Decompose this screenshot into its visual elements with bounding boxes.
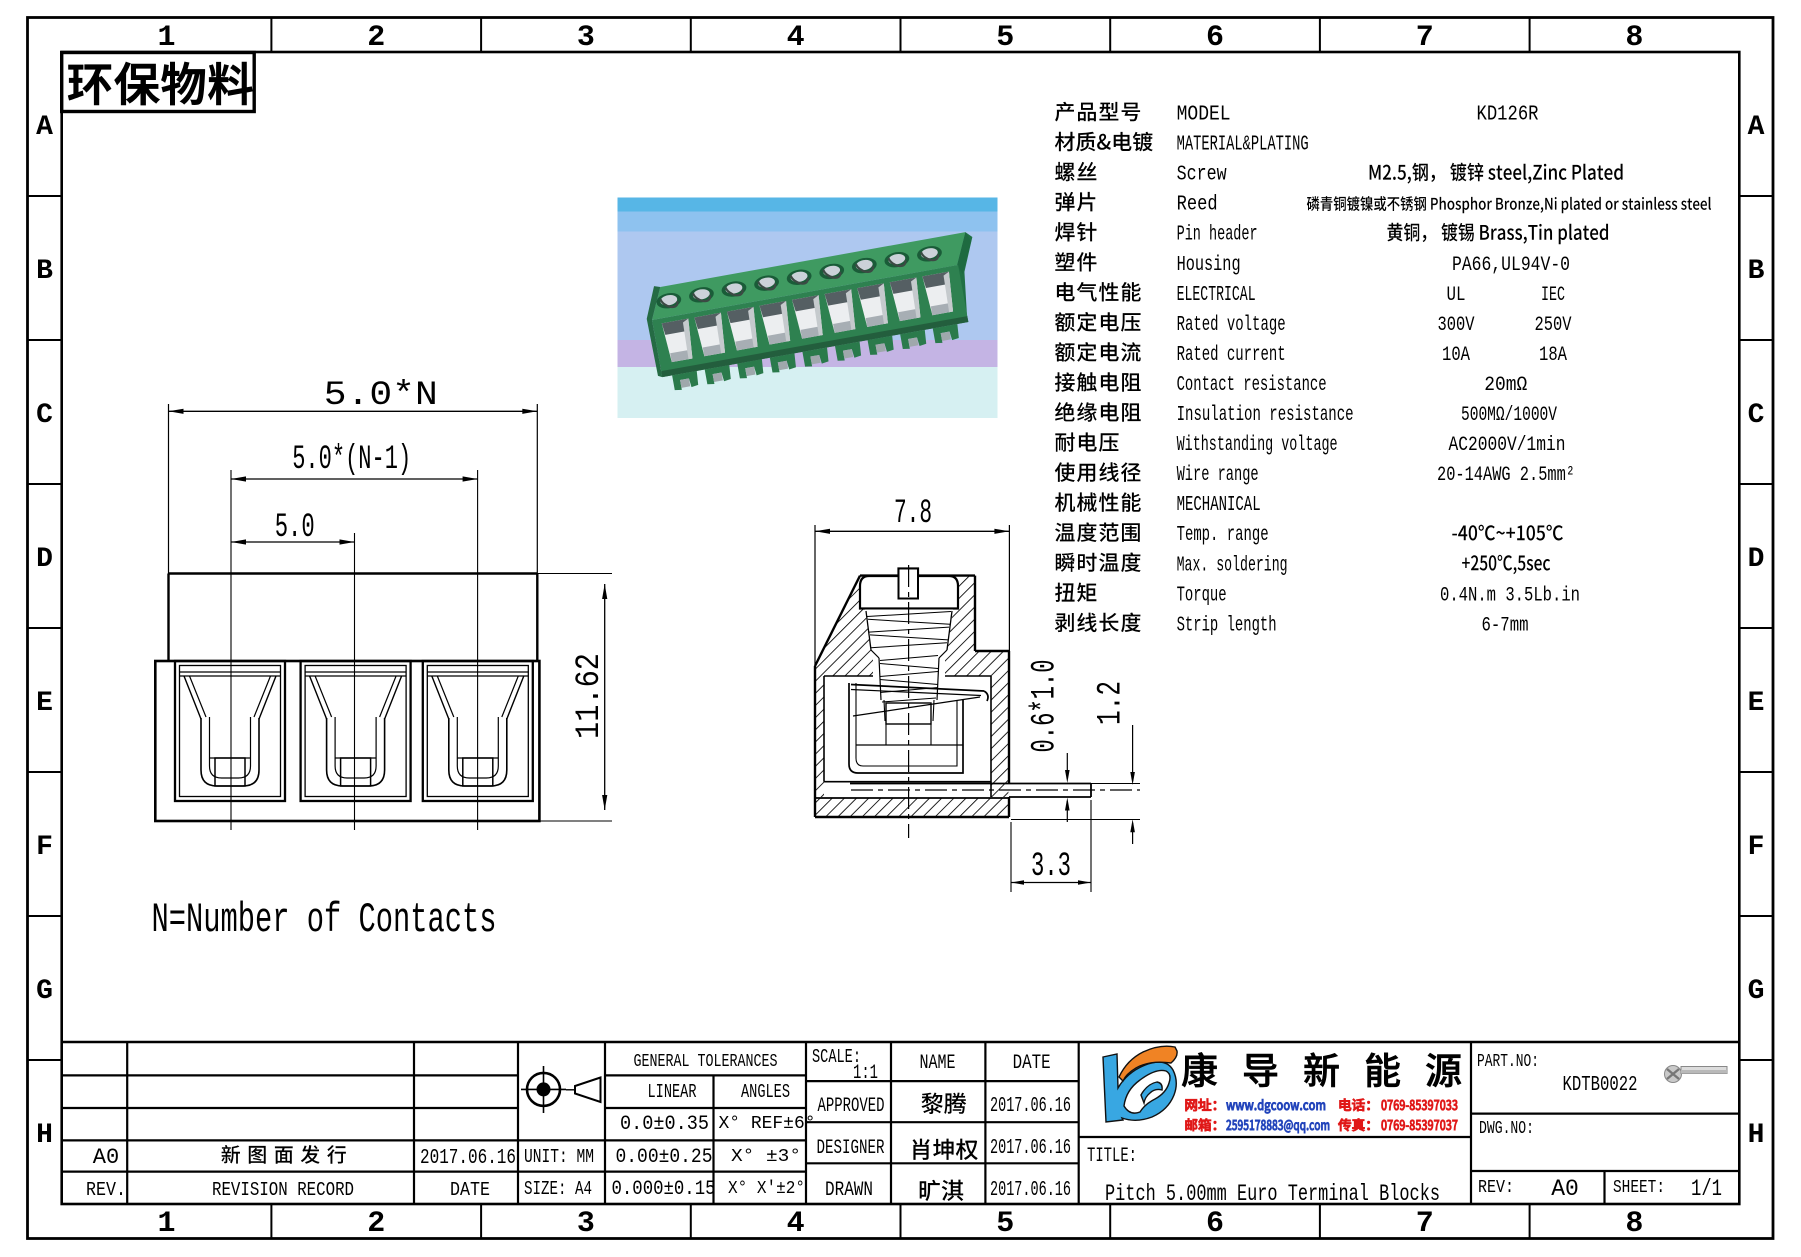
svg-text:PA66,UL94V-0: PA66,UL94V-0 — [1452, 254, 1570, 277]
svg-text:18A: 18A — [1539, 344, 1567, 367]
svg-text:Housing: Housing — [1177, 254, 1241, 277]
svg-text:APPROVED: APPROVED — [818, 1095, 885, 1118]
svg-text:X° ±3°: X° ±3° — [731, 1147, 801, 1167]
svg-text:D: D — [1748, 544, 1765, 575]
svg-text:ANGLES: ANGLES — [741, 1081, 790, 1103]
svg-text:Rated voltage: Rated voltage — [1177, 314, 1286, 337]
svg-text:7.8: 7.8 — [894, 495, 932, 533]
svg-text:MODEL: MODEL — [1177, 104, 1231, 127]
svg-text:0.6*1.0: 0.6*1.0 — [1027, 660, 1065, 753]
svg-text:Contact resistance: Contact resistance — [1177, 374, 1327, 397]
svg-text:G: G — [36, 976, 53, 1007]
svg-text:F: F — [1748, 832, 1765, 863]
svg-text:Pin header: Pin header — [1177, 224, 1258, 247]
svg-text:Rated current: Rated current — [1177, 344, 1286, 367]
svg-text:300V: 300V — [1438, 314, 1475, 337]
svg-text:AC2000V/1min: AC2000V/1min — [1449, 434, 1566, 457]
svg-text:500MΩ/1000V: 500MΩ/1000V — [1461, 404, 1557, 427]
svg-text:REV.: REV. — [86, 1179, 126, 1201]
svg-text:3.3: 3.3 — [1031, 848, 1071, 886]
svg-text:PART.NO:: PART.NO: — [1477, 1052, 1539, 1072]
svg-text:N=Number of Contacts: N=Number of Contacts — [152, 896, 497, 944]
svg-text:20mΩ: 20mΩ — [1484, 374, 1527, 397]
svg-text:6: 6 — [1206, 21, 1224, 55]
svg-text:Max. soldering: Max. soldering — [1177, 554, 1288, 577]
svg-text:SHEET:: SHEET: — [1613, 1178, 1665, 1198]
svg-text:IEC: IEC — [1541, 284, 1565, 307]
svg-text:2017.06.16: 2017.06.16 — [990, 1179, 1071, 1202]
svg-text:5.0*(N-1): 5.0*(N-1) — [292, 441, 411, 479]
svg-text:2: 2 — [367, 1207, 385, 1241]
svg-text:4: 4 — [787, 21, 805, 55]
svg-text:DATE: DATE — [450, 1179, 490, 1201]
svg-text:DATE: DATE — [1013, 1052, 1051, 1075]
svg-text:ELECTRICAL: ELECTRICAL — [1177, 284, 1256, 307]
svg-text:A0: A0 — [1551, 1176, 1579, 1202]
svg-text:2017.06.16: 2017.06.16 — [420, 1147, 516, 1170]
svg-text:DESIGNER: DESIGNER — [817, 1137, 885, 1160]
svg-text:UL: UL — [1447, 284, 1466, 307]
svg-text:C: C — [36, 400, 53, 431]
svg-text:250V: 250V — [1535, 314, 1572, 337]
svg-text:A0: A0 — [93, 1145, 119, 1170]
svg-text:H: H — [1748, 1120, 1765, 1151]
svg-text:MATERIAL&PLATING: MATERIAL&PLATING — [1177, 134, 1309, 157]
svg-text:11.62: 11.62 — [571, 653, 609, 739]
svg-text:4: 4 — [787, 1207, 805, 1241]
svg-text:REV:: REV: — [1478, 1178, 1514, 1198]
svg-text:Temp. range: Temp. range — [1177, 524, 1269, 547]
svg-text:A: A — [36, 112, 53, 143]
svg-text:GENERAL TOLERANCES: GENERAL TOLERANCES — [634, 1052, 778, 1072]
svg-text:X° REF±6°: X° REF±6° — [719, 1114, 816, 1134]
svg-text:KD126R: KD126R — [1477, 104, 1539, 127]
svg-text:1/1: 1/1 — [1691, 1176, 1722, 1202]
svg-text:3: 3 — [577, 1207, 595, 1241]
svg-text:D: D — [36, 544, 53, 575]
svg-text:0.00±0.25: 0.00±0.25 — [616, 1146, 713, 1169]
svg-text:10A: 10A — [1442, 344, 1470, 367]
svg-text:5.0*N: 5.0*N — [324, 377, 438, 415]
svg-text:KDTB0022: KDTB0022 — [1563, 1074, 1638, 1097]
svg-text:0.0±0.35: 0.0±0.35 — [620, 1113, 709, 1136]
svg-text:F: F — [36, 832, 53, 863]
svg-text:MECHANICAL: MECHANICAL — [1177, 494, 1261, 517]
svg-text:C: C — [1748, 400, 1765, 431]
svg-text:7: 7 — [1416, 1207, 1434, 1241]
svg-text:LINEAR: LINEAR — [648, 1081, 697, 1103]
svg-text:B: B — [36, 256, 53, 287]
svg-text:0.4N.m 3.5Lb.in: 0.4N.m 3.5Lb.in — [1440, 584, 1580, 607]
svg-text:Pitch 5.00mm Euro Terminal Blo: Pitch 5.00mm Euro Terminal Blocks — [1105, 1181, 1440, 1207]
svg-text:1.2: 1.2 — [1093, 681, 1131, 725]
svg-text:DRAWN: DRAWN — [825, 1179, 873, 1202]
svg-text:A: A — [1748, 112, 1765, 143]
svg-text:20-14AWG 2.5mm²: 20-14AWG 2.5mm² — [1437, 464, 1575, 487]
svg-text:5: 5 — [996, 1207, 1014, 1241]
svg-text:TITLE:: TITLE: — [1087, 1145, 1137, 1168]
svg-text:Wire range: Wire range — [1177, 464, 1259, 487]
svg-text:E: E — [36, 688, 53, 719]
svg-text:Withstanding voltage: Withstanding voltage — [1177, 434, 1338, 457]
svg-text:5.0: 5.0 — [275, 509, 315, 547]
svg-text:6-7mm: 6-7mm — [1482, 614, 1529, 637]
svg-text:NAME: NAME — [920, 1052, 956, 1075]
svg-text:2017.06.16: 2017.06.16 — [990, 1095, 1071, 1118]
svg-text:DWG.NO:: DWG.NO: — [1479, 1119, 1534, 1139]
svg-text:B: B — [1748, 256, 1765, 287]
svg-text:REVISION RECORD: REVISION RECORD — [212, 1179, 354, 1201]
svg-text:3: 3 — [577, 21, 595, 55]
svg-text:2017.06.16: 2017.06.16 — [990, 1137, 1071, 1160]
svg-text:8: 8 — [1625, 1207, 1643, 1241]
svg-text:Strip length: Strip length — [1177, 614, 1277, 637]
svg-text:0.000±0.15: 0.000±0.15 — [612, 1178, 716, 1201]
svg-text:UNIT: MM: UNIT: MM — [524, 1146, 594, 1168]
svg-text:8: 8 — [1625, 21, 1643, 55]
svg-text:Reed: Reed — [1177, 194, 1218, 217]
svg-text:X° X'±2°: X° X'±2° — [728, 1179, 805, 1199]
svg-text:1: 1 — [157, 1207, 175, 1241]
svg-text:1: 1 — [157, 21, 175, 55]
svg-text:Insulation resistance: Insulation resistance — [1177, 404, 1354, 427]
svg-text:2: 2 — [367, 21, 385, 55]
svg-text:H: H — [36, 1120, 53, 1151]
svg-text:1:1: 1:1 — [853, 1062, 878, 1085]
svg-text:7: 7 — [1416, 21, 1434, 55]
svg-text:SIZE: A4: SIZE: A4 — [524, 1178, 592, 1200]
svg-text:6: 6 — [1206, 1207, 1224, 1241]
svg-text:E: E — [1748, 688, 1765, 719]
svg-text:Torque: Torque — [1177, 584, 1227, 607]
svg-text:5: 5 — [996, 21, 1014, 55]
svg-text:G: G — [1748, 976, 1765, 1007]
svg-text:Screw: Screw — [1177, 164, 1227, 187]
